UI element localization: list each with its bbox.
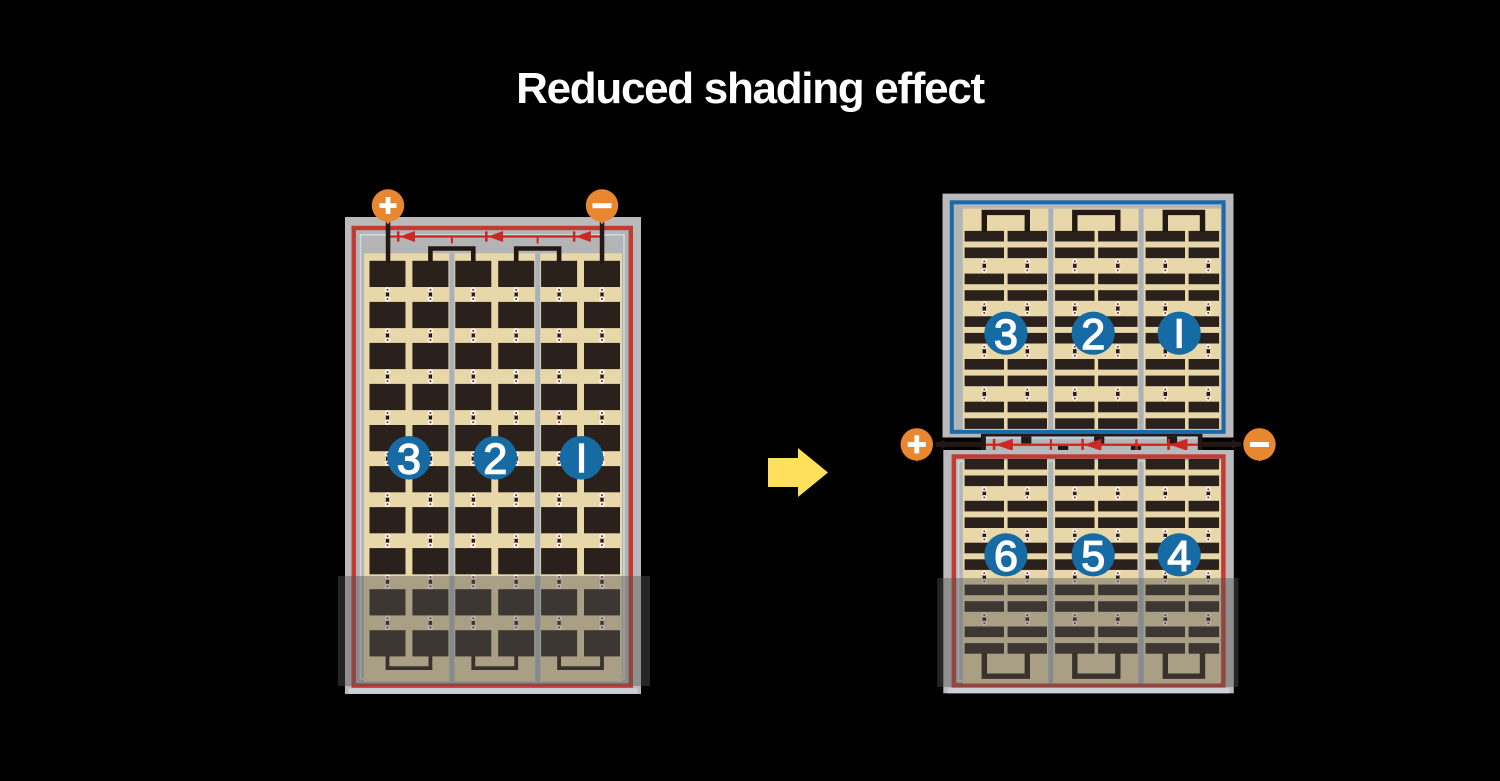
svg-text:3: 3: [397, 436, 421, 484]
svg-text:Reduced shading effect: Reduced shading effect: [516, 64, 985, 113]
svg-text:2: 2: [1081, 311, 1105, 359]
svg-text:3: 3: [994, 311, 1018, 359]
svg-text:5: 5: [1081, 533, 1105, 581]
svg-text:4: 4: [1167, 533, 1191, 581]
svg-text:2: 2: [483, 436, 507, 484]
svg-text:6: 6: [994, 533, 1018, 581]
